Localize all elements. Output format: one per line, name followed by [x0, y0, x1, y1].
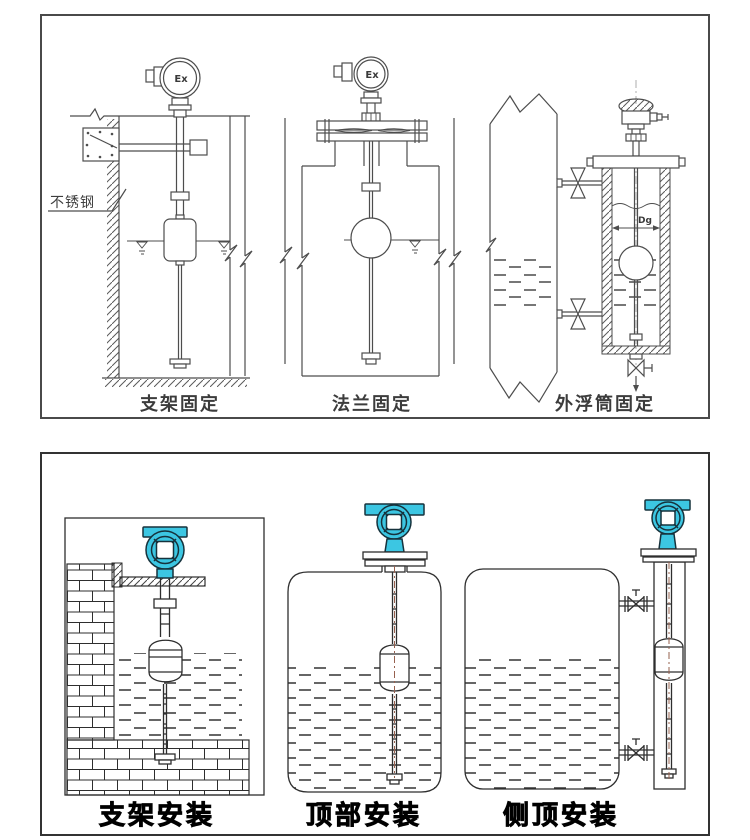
panel-fixing-methods: 不锈钢 Ex	[40, 14, 710, 419]
dg-label: Dg	[638, 216, 652, 226]
rod-lower	[370, 258, 373, 353]
guide-tube	[177, 117, 184, 219]
transmitter-head	[143, 527, 187, 578]
figure-side-top-installation	[465, 500, 696, 789]
brick-wall-base	[67, 740, 249, 795]
transmitter-head	[365, 504, 424, 552]
bracket-arm	[119, 140, 207, 155]
tank-nozzle	[335, 141, 407, 166]
fixing-methods-drawing: 不锈钢 Ex	[42, 16, 708, 417]
panel-installation-examples: 支架安装 顶部安装 侧顶安装	[40, 452, 710, 836]
ex-label: Ex	[174, 74, 188, 85]
figure-flange-fixing: Ex	[280, 57, 461, 376]
float	[149, 640, 182, 682]
inner-wall	[302, 166, 439, 376]
caption-side-top-installation: 侧顶安装	[456, 795, 666, 832]
transmitter-head-ex-1: Ex	[146, 58, 200, 117]
vessel-wall-left	[486, 124, 496, 368]
float	[655, 639, 683, 681]
rod-upper	[370, 141, 373, 221]
stainless-steel-label: 不锈钢	[50, 195, 95, 211]
float	[164, 215, 196, 265]
figure-external-chamber-fixing: Dg	[486, 80, 685, 402]
tank-wall	[230, 116, 245, 376]
figure-top-installation	[288, 504, 441, 792]
float-level-transmitter-installation-diagram: 不锈钢 Ex	[0, 0, 750, 840]
caption-chamber-fixing: 外浮筒固定	[500, 390, 710, 416]
caption-top-installation: 顶部安装	[259, 795, 469, 832]
spherical-float	[351, 218, 391, 258]
transmitter-head	[645, 500, 690, 549]
drain-valve	[628, 354, 652, 392]
level-symbol	[410, 241, 420, 253]
junction-box-transmitter	[619, 99, 668, 156]
break-symbol	[225, 245, 252, 267]
wall-mount-plate	[83, 128, 119, 161]
caption-bracket-fixing: 支架固定	[75, 390, 285, 416]
ex-label: Ex	[365, 70, 379, 81]
isolation-valve-bottom	[557, 299, 602, 329]
liquid	[288, 661, 441, 791]
installation-examples-drawing	[42, 454, 708, 834]
connection-valve-bottom	[619, 739, 654, 761]
liquid	[465, 657, 619, 789]
connection-valve-top	[619, 590, 654, 612]
figure-bracket-fixing: 不锈钢 Ex	[48, 58, 252, 387]
transmitter-head-ex-2: Ex	[334, 57, 388, 121]
liquid-dashes	[494, 258, 554, 308]
spherical-float	[619, 246, 653, 280]
ground-hatch	[105, 379, 247, 387]
brick-wall-column	[67, 564, 114, 740]
caption-flange-fixing: 法兰固定	[267, 390, 477, 416]
rod	[179, 265, 182, 359]
figure-bracket-installation	[65, 518, 264, 795]
caption-bracket-installation: 支架安装	[52, 795, 262, 832]
mounting-flange	[317, 119, 427, 143]
isolation-valve-top	[557, 168, 602, 198]
break-symbol-top	[490, 94, 557, 124]
